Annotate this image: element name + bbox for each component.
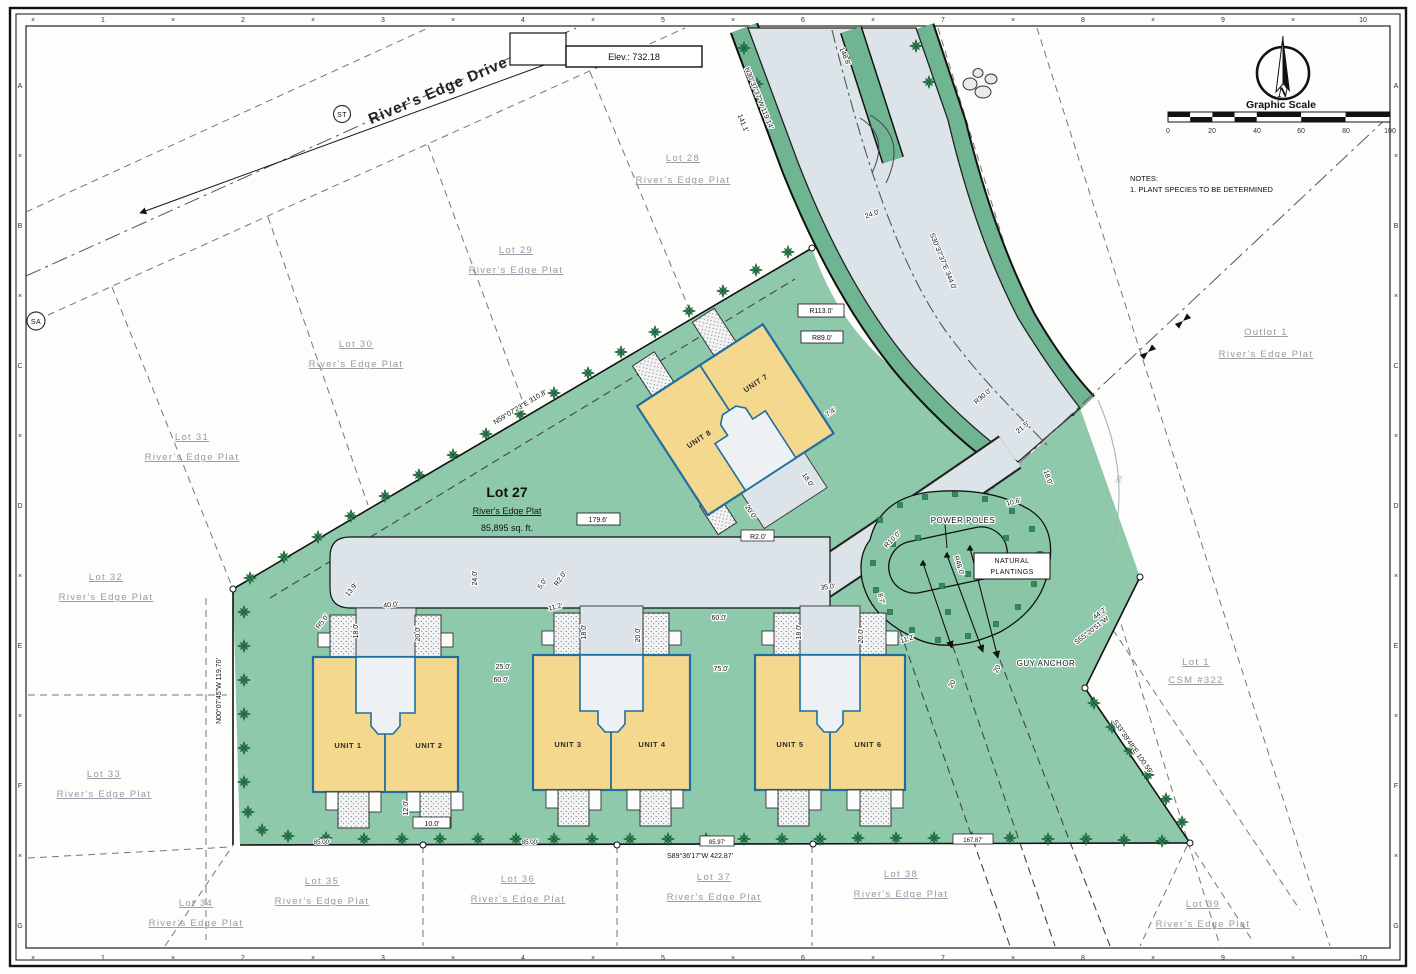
rivers-edge-drive: ST SA River's Edge Drive	[26, 28, 685, 330]
unit-4-label: UNIT 4	[638, 740, 666, 749]
svg-text:River's Edge Plat: River's Edge Plat	[636, 175, 731, 186]
svg-text:×: ×	[871, 955, 875, 962]
svg-text:River's Edge Plat: River's Edge Plat	[667, 892, 762, 903]
svg-text:×: ×	[311, 17, 315, 24]
svg-text:×: ×	[591, 17, 595, 24]
svg-text:PLANTINGS: PLANTINGS	[990, 569, 1033, 576]
svg-text:E: E	[1394, 643, 1399, 650]
svg-text:C: C	[1393, 363, 1398, 370]
svg-text:River's Edge Plat: River's Edge Plat	[309, 359, 404, 370]
svg-text:Lot 33: Lot 33	[87, 769, 121, 780]
unit-2-label: UNIT 2	[415, 741, 442, 750]
svg-text:20.0': 20.0'	[635, 628, 642, 643]
svg-text:River's Edge Plat: River's Edge Plat	[471, 894, 566, 905]
svg-text:3: 3	[381, 17, 385, 24]
svg-text:×: ×	[171, 955, 175, 962]
svg-text:River's Edge Plat: River's Edge Plat	[1219, 349, 1314, 360]
benchmark-elevation: Elev.: 732.18	[140, 33, 702, 213]
svg-text:River's Edge Plat: River's Edge Plat	[469, 265, 564, 276]
svg-text:60.0': 60.0'	[712, 615, 727, 622]
svg-text:×: ×	[731, 955, 735, 962]
notes-item-1: 1. PLANT SPECIES TO BE DETERMINED	[1130, 185, 1274, 194]
lot27-plat: River's Edge Plat	[473, 506, 542, 516]
svg-text:100: 100	[1384, 128, 1396, 135]
svg-text:2: 2	[241, 17, 245, 24]
scale-bar	[1168, 112, 1390, 122]
svg-text:ST: ST	[337, 112, 347, 119]
svg-text:4: 4	[521, 17, 525, 24]
svg-text:Lot 36: Lot 36	[501, 874, 535, 885]
svg-text:×: ×	[171, 17, 175, 24]
survey-marker-icon	[1175, 313, 1191, 328]
svg-text:River's Edge Plat: River's Edge Plat	[145, 452, 240, 463]
svg-text:1: 1	[101, 17, 105, 24]
svg-text:C: C	[17, 363, 22, 370]
bearing-s89: S89°36'17"W 422.87'	[667, 852, 733, 860]
svg-text:25.0': 25.0'	[496, 664, 511, 671]
bush-cluster	[963, 69, 997, 99]
svg-text:Lot 28: Lot 28	[666, 153, 700, 164]
svg-text:×: ×	[451, 17, 455, 24]
power-poles-label: POWER POLES	[931, 516, 996, 525]
svg-text:×: ×	[1394, 293, 1398, 300]
svg-text:80: 80	[1342, 128, 1350, 135]
svg-text:5: 5	[661, 955, 665, 962]
svg-text:×: ×	[1394, 433, 1398, 440]
svg-text:×: ×	[1151, 17, 1155, 24]
svg-text:141.1': 141.1'	[736, 113, 750, 133]
svg-text:60.0': 60.0'	[494, 677, 509, 684]
svg-text:18.0': 18.0'	[353, 624, 360, 639]
svg-text:×: ×	[1394, 713, 1398, 720]
bearing-n00: N00°07'45"W 119.70'	[215, 658, 223, 724]
svg-text:Lot 39: Lot 39	[1186, 899, 1220, 910]
svg-text:River's Edge Plat: River's Edge Plat	[1156, 919, 1251, 930]
svg-text:18.0': 18.0'	[581, 625, 588, 640]
svg-text:×: ×	[1291, 17, 1295, 24]
svg-text:85.97': 85.97'	[709, 840, 725, 846]
svg-text:F: F	[18, 783, 22, 790]
svg-text:×: ×	[18, 433, 22, 440]
natural-plantings-label: NATURAL	[995, 558, 1030, 565]
notes-block: NOTES: 1. PLANT SPECIES TO BE DETERMINED	[1130, 174, 1274, 194]
contour-label: 90	[1115, 475, 1124, 485]
elevation-label: Elev.: 732.18	[608, 52, 660, 62]
svg-text:9: 9	[1221, 955, 1225, 962]
frame-top-ticks: 12345678910 ××××××××××	[31, 17, 1367, 24]
svg-text:Lot 34: Lot 34	[179, 898, 213, 909]
svg-text:B: B	[18, 223, 23, 230]
duplex-units-1-2: UNIT 1 UNIT 2	[313, 657, 458, 792]
svg-text:0: 0	[1166, 128, 1170, 135]
svg-text:8: 8	[1081, 17, 1085, 24]
svg-text:E: E	[18, 643, 23, 650]
duplex-units-3-4: UNIT 3 UNIT 4	[533, 655, 690, 790]
svg-text:24.0': 24.0'	[472, 571, 479, 586]
svg-text:×: ×	[451, 955, 455, 962]
svg-text:75.0': 75.0'	[714, 666, 729, 673]
svg-text:9: 9	[1221, 17, 1225, 24]
svg-text:8: 8	[1081, 955, 1085, 962]
svg-text:F: F	[1394, 783, 1398, 790]
svg-text:×: ×	[18, 573, 22, 580]
lot27-area: 85,895 sq. ft.	[481, 523, 533, 533]
notes-heading: NOTES:	[1130, 174, 1158, 183]
svg-text:×: ×	[311, 955, 315, 962]
svg-text:4: 4	[521, 955, 525, 962]
survey-marker-icon	[1140, 344, 1156, 359]
svg-text:×: ×	[18, 293, 22, 300]
svg-text:River's Edge Plat: River's Edge Plat	[275, 896, 370, 907]
svg-text:G: G	[1393, 923, 1398, 930]
site-plan-drawing: 12345678910 ×××××××××× 12345678910 ×××××…	[0, 0, 1416, 974]
svg-text:20: 20	[1208, 128, 1216, 135]
svg-text:6: 6	[801, 17, 805, 24]
svg-text:Lot 31: Lot 31	[175, 432, 209, 443]
svg-text:D: D	[17, 503, 22, 510]
svg-text:R113.0': R113.0'	[809, 308, 832, 315]
svg-text:×: ×	[1011, 955, 1015, 962]
svg-text:7: 7	[941, 17, 945, 24]
svg-text:×: ×	[31, 17, 35, 24]
svg-text:1: 1	[101, 955, 105, 962]
site-plan-sheet: 12345678910 ×××××××××× 12345678910 ×××××…	[0, 0, 1416, 974]
svg-text:River's Edge Plat: River's Edge Plat	[149, 918, 244, 929]
svg-text:3: 3	[381, 955, 385, 962]
svg-text:Lot 38: Lot 38	[884, 869, 918, 880]
svg-text:5: 5	[661, 17, 665, 24]
svg-text:167.87': 167.87'	[963, 838, 983, 844]
unit-6-label: UNIT 6	[854, 740, 881, 749]
lot27-name: Lot 27	[486, 484, 527, 500]
svg-text:×: ×	[18, 713, 22, 720]
svg-text:7: 7	[941, 955, 945, 962]
svg-text:Lot 35: Lot 35	[305, 876, 339, 887]
svg-text:Lot 37: Lot 37	[697, 872, 731, 883]
svg-text:Lot 32: Lot 32	[89, 572, 123, 583]
unit-5-label: UNIT 5	[776, 740, 803, 749]
svg-text:10: 10	[1359, 17, 1367, 24]
svg-text:×: ×	[18, 153, 22, 160]
svg-text:10: 10	[1359, 955, 1367, 962]
svg-text:40: 40	[1253, 128, 1261, 135]
svg-text:×: ×	[18, 853, 22, 860]
svg-text:River's Edge Plat: River's Edge Plat	[854, 889, 949, 900]
svg-text:Lot 30: Lot 30	[339, 339, 373, 350]
svg-text:2: 2	[241, 955, 245, 962]
frame-bottom-ticks: 12345678910 ××××××××××	[31, 955, 1367, 962]
svg-text:River's Edge Plat: River's Edge Plat	[57, 789, 152, 800]
graphic-scale: Graphic Scale 020406080100	[1166, 99, 1396, 135]
svg-text:179.6': 179.6'	[589, 517, 608, 524]
svg-text:Outlot 1: Outlot 1	[1244, 327, 1288, 338]
svg-text:×: ×	[1151, 955, 1155, 962]
svg-text:20.0': 20.0'	[415, 627, 422, 642]
svg-text:R2.0': R2.0'	[750, 534, 766, 541]
svg-text:18.0': 18.0'	[796, 625, 803, 640]
svg-text:12.0': 12.0'	[403, 801, 410, 816]
svg-text:×: ×	[31, 955, 35, 962]
svg-text:×: ×	[731, 17, 735, 24]
svg-text:River's Edge Plat: River's Edge Plat	[59, 592, 154, 603]
svg-text:×: ×	[1291, 955, 1295, 962]
svg-text:×: ×	[1394, 573, 1398, 580]
svg-text:A: A	[18, 83, 23, 90]
svg-text:×: ×	[591, 955, 595, 962]
svg-text:×: ×	[1394, 853, 1398, 860]
svg-text:10.0': 10.0'	[425, 821, 440, 828]
unit-3-label: UNIT 3	[554, 740, 581, 749]
svg-text:60: 60	[1297, 128, 1305, 135]
north-arrow: N	[1257, 36, 1309, 101]
svg-text:85.00': 85.00'	[522, 840, 538, 846]
svg-text:Lot 29: Lot 29	[499, 245, 533, 256]
unit-1-label: UNIT 1	[334, 741, 361, 750]
graphic-scale-title: Graphic Scale	[1246, 99, 1316, 111]
svg-text:CSM #322: CSM #322	[1168, 675, 1223, 686]
svg-text:85.00': 85.00'	[314, 840, 330, 846]
svg-text:6: 6	[801, 955, 805, 962]
svg-text:R89.0': R89.0'	[812, 335, 832, 342]
svg-text:B: B	[1394, 223, 1399, 230]
svg-text:SA: SA	[31, 319, 41, 326]
svg-text:20.0': 20.0'	[858, 629, 865, 644]
svg-text:A: A	[1394, 83, 1399, 90]
svg-text:G: G	[17, 923, 22, 930]
svg-text:×: ×	[1394, 153, 1398, 160]
svg-text:D: D	[1393, 503, 1398, 510]
svg-text:Lot 1: Lot 1	[1182, 657, 1210, 668]
guy-anchor-label: GUY ANCHOR	[1017, 659, 1076, 668]
svg-text:×: ×	[1011, 17, 1015, 24]
svg-text:×: ×	[871, 17, 875, 24]
duplex-units-5-6: UNIT 5 UNIT 6	[755, 655, 905, 790]
